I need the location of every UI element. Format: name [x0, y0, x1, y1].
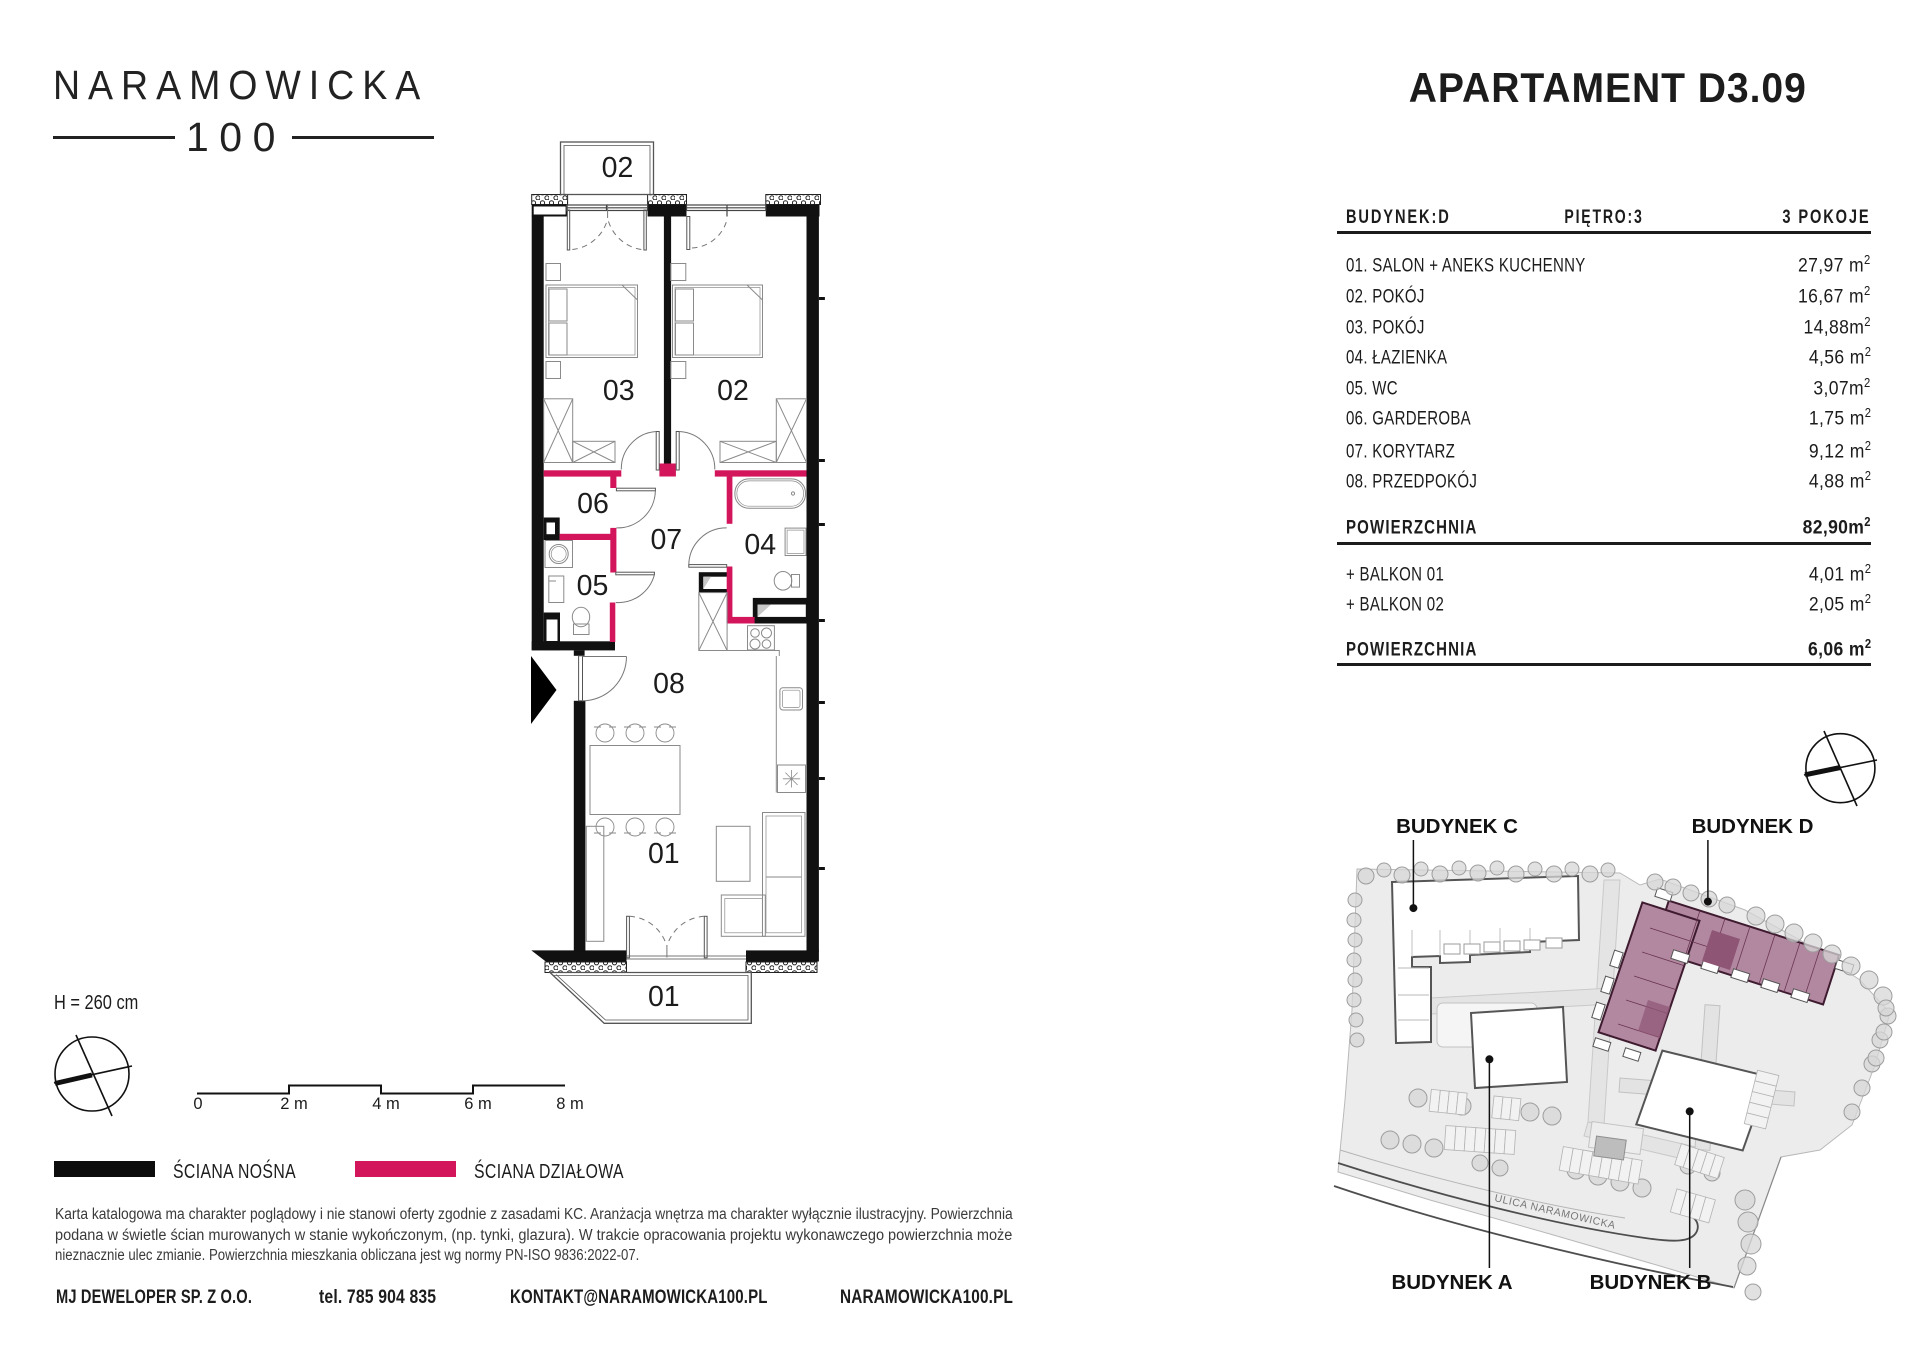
svg-text:2 m: 2 m [280, 1095, 308, 1113]
svg-text:4 m: 4 m [372, 1095, 400, 1113]
svg-text:0: 0 [193, 1095, 202, 1113]
svg-text:08: 08 [653, 668, 685, 700]
svg-text:02: 02 [717, 375, 749, 407]
svg-text:6 m: 6 m [464, 1095, 492, 1113]
svg-text:05: 05 [577, 570, 609, 602]
svg-text:07: 07 [650, 524, 682, 556]
svg-text:01: 01 [648, 838, 680, 870]
svg-text:8 m: 8 m [556, 1095, 584, 1113]
svg-text:03: 03 [603, 375, 635, 407]
svg-text:04: 04 [744, 529, 776, 561]
svg-text:BUDYNEK A: BUDYNEK A [1391, 1271, 1512, 1294]
svg-text:01: 01 [648, 981, 680, 1013]
svg-text:02: 02 [602, 152, 634, 184]
svg-text:BUDYNEK C: BUDYNEK C [1396, 815, 1518, 838]
svg-text:BUDYNEK B: BUDYNEK B [1590, 1271, 1712, 1294]
svg-text:BUDYNEK D: BUDYNEK D [1692, 815, 1814, 838]
svg-text:06: 06 [577, 488, 609, 520]
